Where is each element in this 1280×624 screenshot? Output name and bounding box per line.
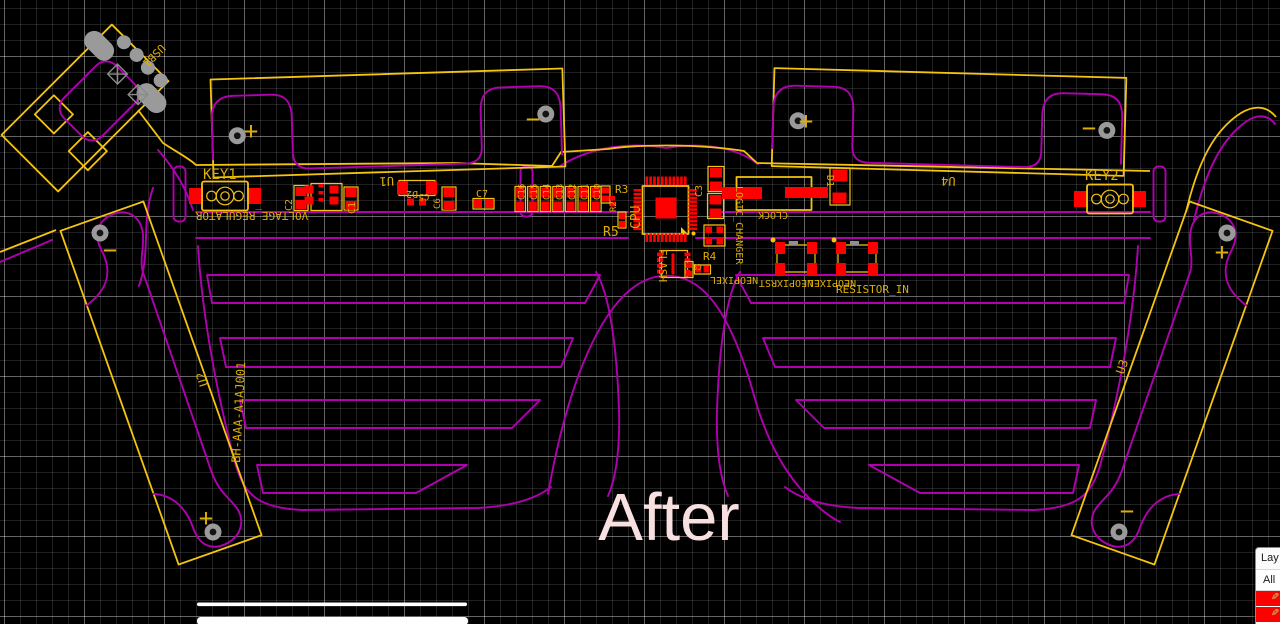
label-cap-bank: C15 (530, 184, 540, 200)
cpu-pad[interactable] (669, 234, 672, 243)
label-cap-bank: C11 (581, 184, 591, 200)
smd-pad[interactable] (592, 202, 600, 212)
smd-pad[interactable] (554, 202, 562, 212)
louver-slot (869, 465, 1079, 493)
louver-slot (240, 400, 540, 428)
cpu-pad[interactable] (653, 177, 656, 186)
label-c1: C1 (347, 202, 358, 214)
label-c5: C5 (419, 191, 430, 201)
label-clock: CLOCK (758, 209, 788, 220)
cpu-pad[interactable] (649, 234, 652, 243)
label-r3: R3 (615, 183, 628, 196)
battery-holder-u1[interactable]: U1 (211, 68, 566, 193)
neopixel-pad[interactable] (868, 263, 878, 275)
neopixel-pad[interactable] (807, 242, 817, 254)
battery-holder-u3[interactable] (1071, 201, 1272, 564)
plus-mark: + (799, 107, 813, 135)
minus-mark: − (103, 236, 117, 264)
flash-pad[interactable] (685, 253, 691, 257)
cpu-pad[interactable] (689, 201, 698, 204)
silk-bar (1154, 167, 1166, 222)
cpu-pad[interactable] (657, 234, 660, 243)
smd-pad[interactable] (516, 202, 524, 212)
cpu-pad[interactable] (634, 189, 643, 192)
label-c3: C3 (694, 185, 705, 197)
cpu-pad[interactable] (646, 177, 649, 186)
cpu-pad[interactable] (657, 177, 660, 186)
cpu-pad[interactable] (669, 177, 672, 186)
cpu-pad[interactable] (672, 234, 675, 243)
neopixel-pad[interactable] (836, 242, 846, 254)
battery-holder-u2[interactable] (60, 201, 261, 564)
neopixel-leds[interactable] (771, 238, 879, 276)
label-key1: KEY1 (203, 167, 237, 183)
cpu-pad[interactable] (676, 177, 679, 186)
cpu-pad[interactable] (684, 234, 687, 243)
usb-pin-pad[interactable] (114, 32, 134, 52)
neopixel-mark (850, 241, 859, 245)
neopixel-pad[interactable] (775, 263, 785, 275)
cpu-pad[interactable] (689, 220, 698, 223)
cpu-pad[interactable] (680, 177, 683, 186)
label-resistor-in: RESISTOR_IN (836, 283, 909, 296)
label-c7: C7 (476, 189, 488, 200)
key2-button[interactable] (1074, 185, 1146, 214)
smd-pad[interactable] (541, 202, 549, 212)
right-hinge-silk (1194, 116, 1275, 220)
label-u1: U1 (379, 174, 394, 188)
edit-pencil-icon: ✎ (1271, 592, 1279, 604)
usb-hole (35, 95, 73, 133)
layer-row[interactable]: ✎ (1256, 591, 1280, 607)
cpu-pad[interactable] (634, 201, 643, 204)
cpu-pad[interactable] (676, 234, 679, 243)
pin1-dot (771, 238, 776, 243)
neopixel-pad[interactable] (807, 263, 817, 275)
layers-panel-all-row[interactable]: All (1256, 570, 1280, 591)
label-cap-bank: C16 (518, 184, 528, 200)
label-d2: D2 (406, 188, 418, 199)
glasses-frame-silkscreen (0, 116, 1275, 522)
cpu-pad[interactable] (653, 234, 656, 243)
cpu-pad[interactable] (649, 177, 652, 186)
minus-mark: − (526, 105, 540, 133)
cpu-pad[interactable] (665, 177, 668, 186)
label-d1: D1 (824, 175, 835, 187)
label-logic-changer: LOGIC_CHANGER (733, 186, 744, 265)
pcb-canvas[interactable]: USB1 U1 U4 + + + + − − − (0, 0, 1280, 624)
cpu-pad[interactable] (665, 234, 668, 243)
cpu-pad[interactable] (680, 234, 683, 243)
label-flash: FLASH (656, 249, 669, 282)
logic-changer-ic[interactable] (704, 225, 725, 246)
layers-panel-title: Lay (1256, 548, 1280, 570)
louver-slot (763, 338, 1116, 367)
minus-mark: − (1120, 497, 1134, 525)
layer-row[interactable]: ✎ (1256, 607, 1280, 623)
neopixel-mark (789, 241, 798, 245)
usb-shell-pad[interactable] (80, 27, 118, 65)
label-c2: C2 (284, 199, 295, 211)
label-cap-bank: C10 (593, 184, 603, 200)
key1-button[interactable] (189, 182, 261, 211)
left-lens-outline (198, 246, 551, 510)
smd-pad[interactable] (567, 202, 575, 212)
label-cpu: CPU (629, 206, 644, 229)
cpu-pad[interactable] (634, 193, 643, 196)
cpu-pad[interactable] (661, 234, 664, 243)
plus-mark: + (1215, 238, 1229, 266)
label-cap-bank: C14 (543, 184, 553, 200)
label-u4: U4 (941, 174, 956, 188)
label-neopixel-a: NEOPIXEL (710, 274, 758, 285)
louver-slot (796, 400, 1096, 428)
cpu-pad[interactable] (689, 216, 698, 219)
cpu-pad[interactable] (684, 177, 687, 186)
label-r4: R4 (703, 250, 717, 263)
label-neopixrst: NEOPIXRST (759, 277, 813, 288)
label-r2: R2 (609, 201, 619, 212)
c7-capacitor[interactable] (473, 199, 494, 210)
cpu-pad[interactable] (661, 177, 664, 186)
cpu-pad[interactable] (689, 212, 698, 215)
label-u2: U2 (193, 370, 211, 388)
smd-pad[interactable] (579, 202, 587, 212)
cpu-pad[interactable] (689, 208, 698, 211)
capacitor-bank[interactable]: C16C15C14C13C12C11C10 (515, 184, 603, 212)
layers-panel[interactable]: Lay All ✎ ✎ (1255, 547, 1280, 624)
edit-pencil-icon: ✎ (1271, 608, 1279, 620)
louver-slot (220, 338, 573, 367)
white-rule-thick (197, 617, 468, 624)
minus-mark: − (1082, 114, 1096, 142)
pin1-marker (681, 227, 688, 234)
c3-capacitors[interactable] (708, 167, 725, 219)
neopixel-pad[interactable] (775, 242, 785, 254)
cpu-pad[interactable] (689, 204, 698, 207)
cpu-pad[interactable] (634, 197, 643, 200)
label-battery-part: BH-AAA-A1AJ001 (229, 361, 248, 463)
label-c9: C9 (692, 262, 702, 271)
label-cap-bank: C13 (555, 184, 565, 200)
cpu-pad[interactable] (689, 228, 698, 231)
cpu-pad[interactable] (689, 224, 698, 227)
right-lens-inner-edge (717, 272, 740, 496)
cpu-pad[interactable] (646, 234, 649, 243)
white-rule (197, 603, 467, 607)
smd-pad[interactable] (529, 202, 537, 212)
plus-mark: + (244, 117, 258, 145)
silk-bar (174, 167, 186, 222)
louver-slot (207, 275, 600, 303)
louver-slot (257, 465, 467, 493)
cpu-pad[interactable] (672, 177, 675, 186)
neopixel-pad[interactable] (868, 242, 878, 254)
neopixel-pad[interactable] (836, 263, 846, 275)
pin1-dot (832, 238, 837, 243)
label-r5: R5 (603, 225, 619, 240)
plus-mark: + (199, 504, 213, 532)
label-c6: C6 (433, 198, 443, 209)
caption-after: After (598, 480, 740, 555)
usb-connector[interactable]: USB1 (0, 2, 195, 204)
label-cap-bank: C12 (568, 184, 578, 200)
label-key2: KEY2 (1085, 168, 1119, 184)
